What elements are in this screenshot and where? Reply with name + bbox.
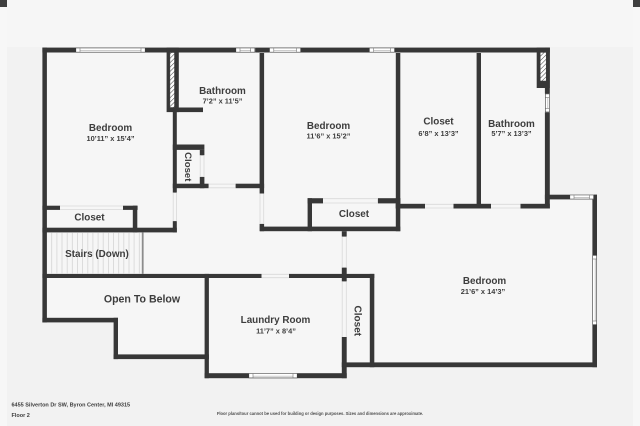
svg-text:Laundry Room: Laundry Room <box>241 315 311 326</box>
svg-text:Floor 2: Floor 2 <box>12 413 30 419</box>
svg-text:Bedroom: Bedroom <box>463 276 507 287</box>
svg-text:Floor plans/tour cannot be use: Floor plans/tour cannot be used for buil… <box>217 411 423 416</box>
svg-text:Closet: Closet <box>352 306 363 337</box>
svg-text:Open To Below: Open To Below <box>104 294 181 306</box>
svg-text:11’7” x 8’4”: 11’7” x 8’4” <box>256 326 296 335</box>
svg-text:21’6” x 14’3”: 21’6” x 14’3” <box>461 287 506 296</box>
svg-text:Bedroom: Bedroom <box>307 121 351 132</box>
svg-text:5’7” x 13’3”: 5’7” x 13’3” <box>491 129 532 138</box>
svg-text:Closet: Closet <box>339 209 370 220</box>
svg-text:6455 Silverton Dr SW, Byron Ce: 6455 Silverton Dr SW, Byron Center, MI 4… <box>12 402 131 408</box>
svg-text:7’2” x 11’5”: 7’2” x 11’5” <box>203 97 243 106</box>
svg-text:Closet: Closet <box>423 117 454 128</box>
svg-text:11’6” x 15’2”: 11’6” x 15’2” <box>307 131 351 140</box>
svg-text:Bedroom: Bedroom <box>89 123 133 134</box>
svg-text:Closet: Closet <box>182 152 193 182</box>
svg-text:Bathroom: Bathroom <box>488 119 535 130</box>
svg-text:Bathroom: Bathroom <box>199 86 246 97</box>
svg-text:Closet: Closet <box>74 213 105 224</box>
svg-text:10’11” x 15’4”: 10’11” x 15’4” <box>86 134 134 143</box>
svg-text:6’8” x 13’3”: 6’8” x 13’3” <box>418 129 459 138</box>
svg-text:Stairs (Down): Stairs (Down) <box>65 249 129 260</box>
